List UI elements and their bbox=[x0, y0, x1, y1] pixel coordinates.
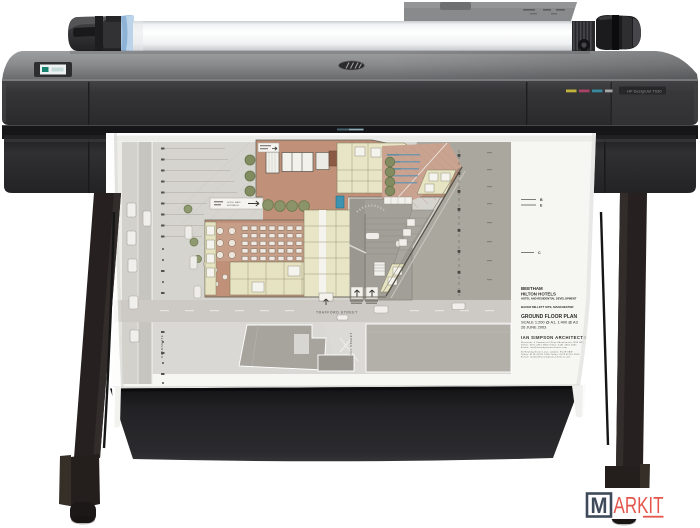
svg-text:DEANSGATE: DEANSGATE bbox=[160, 335, 164, 358]
svg-text:TRAFFORD STREET: TRAFFORD STREET bbox=[316, 311, 358, 315]
svg-text:HP DesignJet T630: HP DesignJet T630 bbox=[627, 88, 662, 93]
svg-text:ARKIT: ARKIT bbox=[614, 492, 664, 518]
svg-text:B: B bbox=[540, 198, 543, 202]
svg-text:ENTRANCE: ENTRANCE bbox=[227, 204, 240, 207]
svg-text:E-mail: london@iansimpsonarchi: E-mail: london@iansimpsonarchitects.com bbox=[521, 355, 571, 358]
svg-text:BAUER MILLETT SITE, MANCHESTER: BAUER MILLETT SITE, MANCHESTER bbox=[521, 305, 574, 309]
svg-text:IAN SIMPSON ARCHITECTS: IAN SIMPSON ARCHITECTS bbox=[521, 335, 587, 340]
svg-text:BEETHAM: BEETHAM bbox=[521, 286, 543, 291]
svg-text:C: C bbox=[538, 251, 541, 255]
svg-text:26 JUNE 2003: 26 JUNE 2003 bbox=[521, 324, 546, 329]
svg-text:M: M bbox=[591, 493, 608, 518]
svg-text:HOTEL AND RESIDENTIAL DEVELOPM: HOTEL AND RESIDENTIAL DEVELOPMENT bbox=[521, 297, 577, 301]
svg-text:E-mail: info@iansimpsonarchite: E-mail: info@iansimpsonarchitects.com bbox=[521, 346, 567, 349]
svg-text:HOTEL MAIN: HOTEL MAIN bbox=[227, 201, 241, 204]
svg-text:HILTON HOTELS: HILTON HOTELS bbox=[521, 291, 556, 296]
